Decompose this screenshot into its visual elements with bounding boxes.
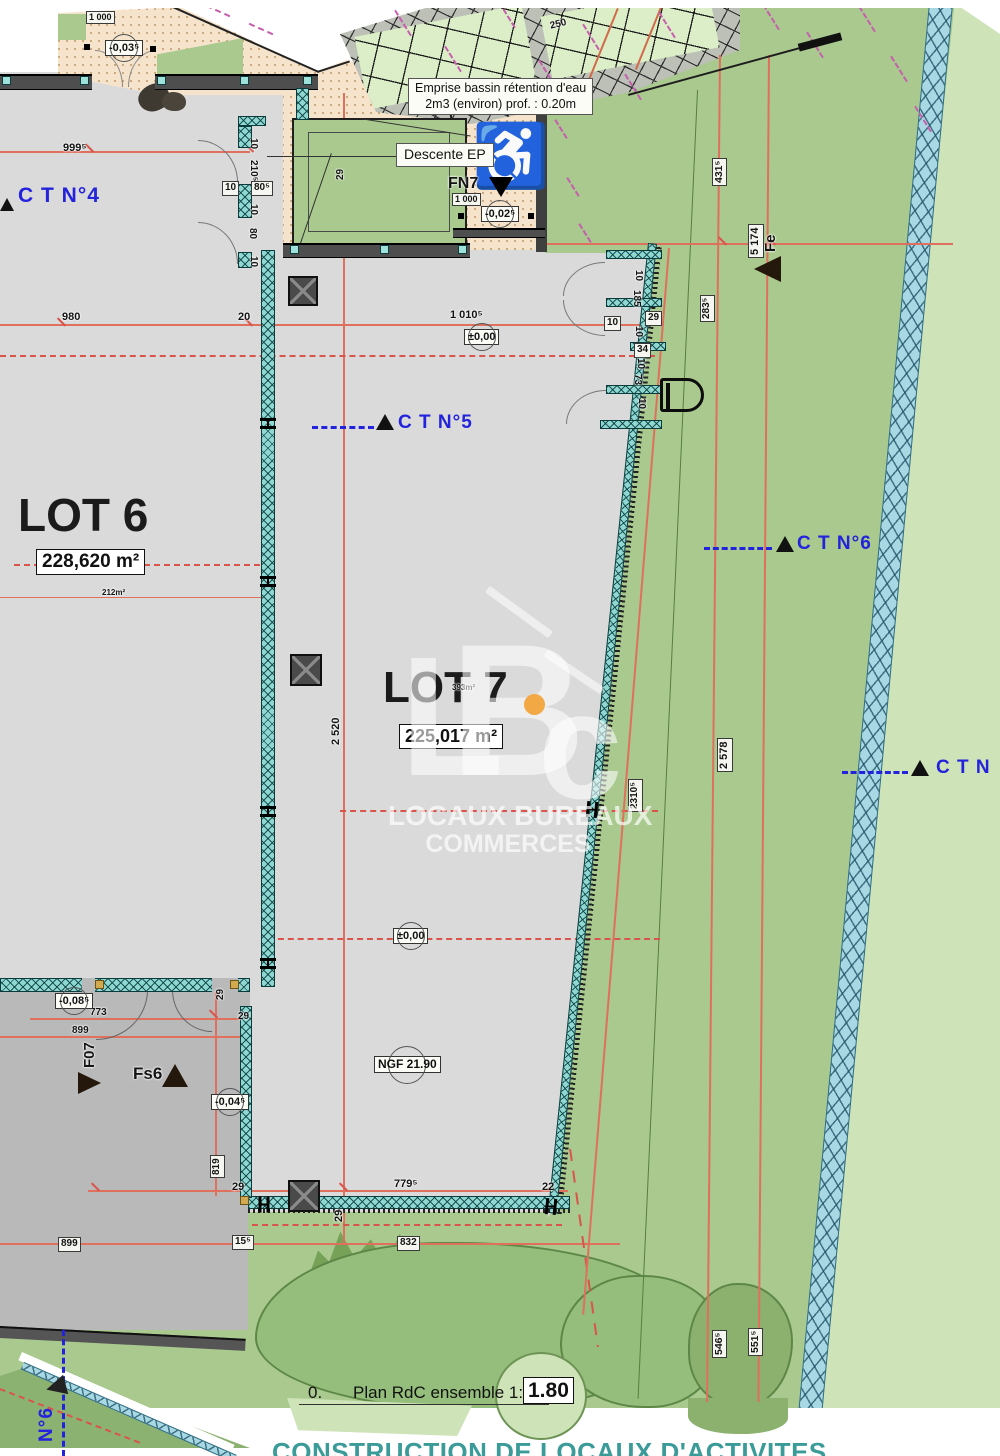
wall-lot-separation [261, 250, 275, 987]
wall-post [240, 76, 249, 85]
wall-top-left-b [155, 74, 318, 90]
dim-29-door: 29 [216, 989, 227, 1000]
door-post-square [84, 44, 90, 50]
steel-column-icon [545, 1198, 558, 1215]
level-box-180: 1.80 [523, 1377, 574, 1404]
emprise-line1: Emprise bassin rétention d'eau [415, 81, 586, 97]
dim-73: 73 [632, 374, 643, 385]
dim-899-b: 899 [58, 1237, 81, 1252]
fe-triangle-icon [754, 256, 781, 282]
dim-15: 15⁵ [232, 1235, 254, 1250]
dim-2578: 2 578 [717, 738, 733, 772]
n6-dashed-line-vertical [62, 1330, 188, 1456]
project-title: CONSTRUCTION DE LOCAUX D'ACTIVITES [272, 1437, 827, 1456]
wall-post [303, 76, 312, 85]
dim-34-box: 34 [634, 343, 651, 358]
dim-29-c: 29 [232, 1182, 244, 1194]
dim-10: 10 [636, 398, 647, 409]
lbc-watermark: L B c LOCAUX BUREAUX COMMERCES [388, 606, 628, 872]
dim-5174: 5 174 [748, 224, 764, 258]
dim-980: 980 [62, 312, 80, 324]
dim-2520: 2 520 [331, 717, 343, 745]
dim-10: 10 [633, 326, 644, 337]
column-icon [290, 654, 322, 686]
dim-line-899 [0, 1036, 250, 1038]
f07-triangle-icon [78, 1072, 101, 1094]
steel-column-icon [260, 958, 276, 969]
dashed-axis-line [268, 938, 660, 940]
wall-post-gold [230, 980, 239, 989]
level-marker-m008: -0,08⁵ [55, 993, 93, 1009]
dim-999: 999⁵ [63, 143, 87, 155]
dim-10: 10 [248, 138, 259, 149]
wall-under-basin [283, 243, 470, 258]
level-marker-zero-a: ±0,00 [464, 329, 499, 345]
ct-right-triangle-icon [911, 760, 929, 776]
dim-29-d: 29 [334, 1210, 346, 1222]
site-symbol-bar [666, 383, 670, 410]
dim-10: 10 [633, 270, 644, 281]
door-opening [82, 978, 95, 992]
ct5-triangle-icon [376, 414, 394, 430]
thin-grid-line [0, 597, 264, 598]
wall-post-gold [95, 980, 104, 989]
column-icon [288, 276, 318, 306]
lot6-title: LOT 6 [18, 492, 148, 538]
caption-text: Plan RdC ensemble 1:100 [353, 1383, 551, 1403]
dim-80: 80 [247, 228, 258, 239]
descente-ep-box: Descente EP [396, 143, 494, 167]
wall-entrance-bar [606, 385, 662, 394]
dim-546: 546⁵ [712, 1330, 727, 1358]
fn7-elevation: 1 000 [452, 193, 481, 206]
dim-line-832 [0, 1243, 620, 1245]
dim-551: 551⁵ [748, 1328, 763, 1356]
fs6-label: Fs6 [133, 1065, 162, 1083]
wall-post-gold [240, 1196, 249, 1205]
descente-ep-basin [292, 118, 467, 250]
wall-handicap-bottom [453, 228, 545, 238]
n6-label: N°6 [36, 1407, 58, 1442]
wall-post [157, 76, 166, 85]
ct6-dashed-line [704, 547, 772, 550]
dim-line-980 [0, 324, 658, 326]
ct6-triangle-icon [776, 536, 794, 552]
dim-431: 431⁵ [712, 158, 727, 186]
descente-leader-line [267, 156, 397, 157]
fn7-triangle-icon [489, 177, 513, 197]
dim-10: 10 [248, 204, 259, 215]
level-marker-m002: -0,02⁵ [481, 206, 519, 222]
steel-column-icon [260, 418, 276, 429]
column-icon [288, 1180, 320, 1212]
wall-entrance-bar [600, 420, 662, 429]
dim-10: 10 [635, 358, 646, 369]
f07-label: F07 [82, 1042, 98, 1068]
tree-canopy [688, 1398, 788, 1434]
lot6-sub-area: 212m² [102, 589, 125, 597]
paving-tile-patch [540, 0, 719, 80]
ct-right-label: C T N [936, 757, 991, 779]
tree-canopy [688, 1283, 793, 1408]
dim-1000-topleft: 1 000 [86, 11, 115, 24]
level-marker-m003: -0,03⁵ [105, 40, 143, 56]
wall-vestibule-left [238, 116, 266, 126]
ct6-label: C T N°6 [797, 533, 872, 555]
emprise-line2: 2m3 (environ) prof. : 0.20m [415, 97, 586, 113]
magenta-dash [249, 23, 274, 35]
ct4-triangle-icon [0, 198, 14, 211]
level-marker-zero-b: ±0,00 [393, 928, 428, 944]
dim-819: 819 [210, 1155, 225, 1178]
caption-number: 0. [308, 1383, 322, 1403]
dashed-axis-line [252, 1224, 562, 1226]
caption-underline [299, 1404, 549, 1405]
watermark-line1: LOCAUX BUREAUX [388, 802, 628, 830]
steel-column-icon [260, 806, 276, 817]
dim-10-box: 10 [222, 181, 239, 196]
wall-post [290, 245, 299, 254]
shrub-icon [162, 92, 186, 111]
dim-10: 10 [248, 256, 259, 267]
dim-779: 779⁵ [394, 1179, 418, 1191]
wall-post [2, 76, 11, 85]
dashed-axis-line [0, 355, 655, 357]
dim-185: 185 [631, 290, 642, 307]
site-symbol-icon [660, 378, 704, 412]
watermark-orange-dot [524, 694, 545, 715]
dim-899-a: 899 [72, 1026, 89, 1037]
dim-773: 773 [90, 1008, 107, 1019]
emprise-annotation-box: Emprise bassin rétention d'eau 2m3 (envi… [408, 78, 593, 115]
dim-29-basin: 29 [336, 169, 347, 180]
door-post-square [528, 213, 534, 219]
ct4-label: C T N°4 [18, 184, 100, 208]
dim-1010: 1 010⁵ [450, 310, 483, 322]
wall-stub-vertical [296, 88, 309, 120]
dim-29-box: 29 [645, 311, 662, 326]
dim-20: 20 [238, 312, 250, 324]
fn7-label: FN7 [448, 176, 478, 193]
wall-entrance-bar [606, 250, 662, 259]
lot6-area-box: 228,620 m² [36, 549, 145, 575]
door-post-square [458, 213, 464, 219]
dim-80s-box: 80⁵ [251, 181, 273, 196]
dim-29-b: 29 [238, 1012, 249, 1023]
ct5-dashed-line [312, 426, 374, 429]
dim-22: 22 [542, 1182, 554, 1194]
green-patch-top-left-a [58, 14, 86, 40]
dim-832: 832 [397, 1236, 420, 1251]
grid-line-vertical [343, 93, 345, 1245]
ngf-marker: NGF 21.90 [374, 1056, 441, 1073]
ct-right-dashed-line [842, 771, 908, 774]
steel-column-icon [260, 576, 276, 587]
dim-line-773 [30, 1018, 248, 1020]
dim-10-box: 10 [604, 316, 621, 331]
dim-283: 283⁵ [700, 295, 715, 322]
wall-top-left-a [0, 74, 92, 90]
dim-210: 210⁵ [248, 160, 259, 181]
wall-post [80, 76, 89, 85]
wall-post [380, 245, 389, 254]
fs6-triangle-icon [162, 1064, 188, 1087]
watermark-line2: COMMERCES [388, 832, 628, 857]
steel-column-icon [259, 1197, 270, 1213]
door-post-square [150, 46, 156, 52]
level-marker-m004: -0,04⁵ [211, 1094, 249, 1110]
wall-post [458, 245, 467, 254]
dim-line-779 [88, 1190, 568, 1192]
ct5-label: C T N°5 [398, 412, 473, 434]
site-plan-canvas: ♿ L B c LOCAUX BUREAUX COMMERCES LOT 6 2… [0, 0, 1000, 1456]
fe-label: Fe [763, 234, 779, 252]
page-margin-top [0, 0, 1000, 8]
